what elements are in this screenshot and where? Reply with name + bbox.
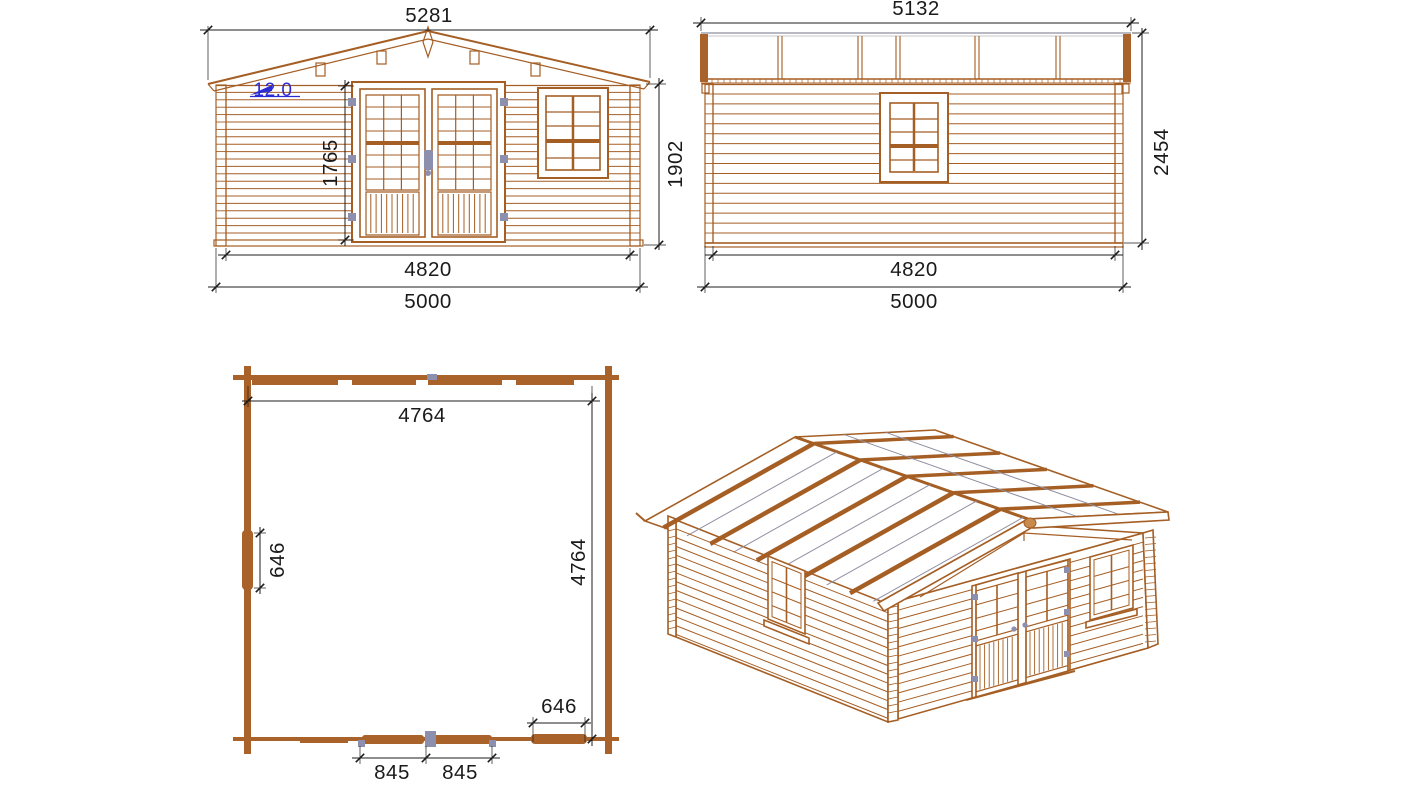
plan-front-window (531, 734, 587, 744)
door-knob-icon (425, 170, 431, 176)
purlin-end (470, 51, 479, 64)
cabin-blueprint: 5281 12.0 1765 1902 4820 (0, 0, 1422, 800)
front-elevation-view: 5281 12.0 1765 1902 4820 (200, 4, 687, 313)
door-knob-icon (1011, 626, 1016, 631)
floor-plan-view: 4764 4764 646 646 845 845 (233, 366, 619, 784)
purlin-end (377, 51, 386, 64)
iso-roof-finial (1024, 518, 1036, 528)
hinge-icon (358, 740, 365, 747)
hinge-icon (348, 213, 356, 221)
dim-text: 4820 (404, 258, 452, 281)
hinge-icon (972, 676, 978, 682)
iso-front-corner-post (888, 600, 898, 722)
door-astragal (425, 731, 436, 747)
hinge-icon (489, 740, 496, 747)
dim-side-ridge-height: 2454 (1124, 28, 1173, 250)
hinge-icon (500, 98, 508, 106)
dim-text: 646 (266, 542, 289, 578)
roof-pitch-text: 12.0 (254, 80, 293, 101)
hinge-icon (972, 594, 978, 600)
dim-plan-side-window: 646 (254, 527, 289, 594)
door-handle-icon (424, 150, 433, 170)
dim-plan-door-leaves: 845 845 (352, 746, 500, 784)
technical-drawing-sheet: 5281 12.0 1765 1902 4820 (0, 0, 1422, 800)
front-left-corner-post (216, 85, 226, 246)
dim-text: 5132 (892, 0, 940, 20)
dim-text: 5281 (405, 4, 453, 27)
dim-text: 1902 (664, 140, 687, 188)
hinge-icon (1064, 651, 1070, 657)
dim-text: 4820 (890, 258, 938, 281)
hinge-icon (348, 98, 356, 106)
dim-text: 845 (374, 761, 410, 784)
front-window (538, 88, 608, 178)
hinge-icon (348, 155, 356, 163)
roof-end-cap (700, 34, 708, 82)
plan-door-leaf-left (362, 735, 424, 744)
front-roof-pitch-annotation: 12.0 (250, 80, 300, 101)
ridge-marker (427, 374, 437, 380)
front-double-door (348, 82, 508, 242)
door-knob-icon (1022, 622, 1027, 627)
hinge-icon (1064, 567, 1070, 573)
hinge-icon (972, 636, 978, 642)
dim-side-roof-length: 5132 (693, 0, 1139, 31)
plan-side-window (242, 530, 253, 590)
dim-text: 1765 (319, 139, 342, 187)
iso-back-corner-post (668, 516, 676, 637)
isometric-view (636, 430, 1169, 722)
hinge-icon (1064, 609, 1070, 615)
dim-text: 4764 (398, 404, 446, 427)
front-right-corner-post (630, 85, 640, 246)
dim-side-log-length: 4820 (705, 246, 1123, 281)
dim-front-eaves-height: 1902 (644, 78, 687, 250)
dim-text: 646 (541, 695, 577, 718)
plan-corner-post (605, 366, 612, 754)
dim-text: 5000 (404, 290, 452, 313)
hinge-icon (500, 155, 508, 163)
dim-front-log-length: 4820 (218, 248, 638, 281)
dim-plan-inner-width: 4764 (242, 386, 600, 427)
dim-text: 4764 (567, 538, 590, 586)
dim-text: 845 (442, 761, 478, 784)
dim-plan-inner-depth: 4764 (567, 393, 592, 746)
side-window (880, 93, 948, 182)
roof-end-cap (1123, 34, 1131, 82)
plan-door-leaf-right (430, 735, 492, 744)
dim-text: 5000 (890, 290, 938, 313)
side-roof-boards (701, 33, 1131, 83)
side-elevation-view: 5132 2454 4820 5000 (693, 0, 1173, 313)
hinge-icon (500, 213, 508, 221)
iso-back-eave-tip (636, 513, 645, 521)
dim-text: 2454 (1150, 128, 1173, 176)
